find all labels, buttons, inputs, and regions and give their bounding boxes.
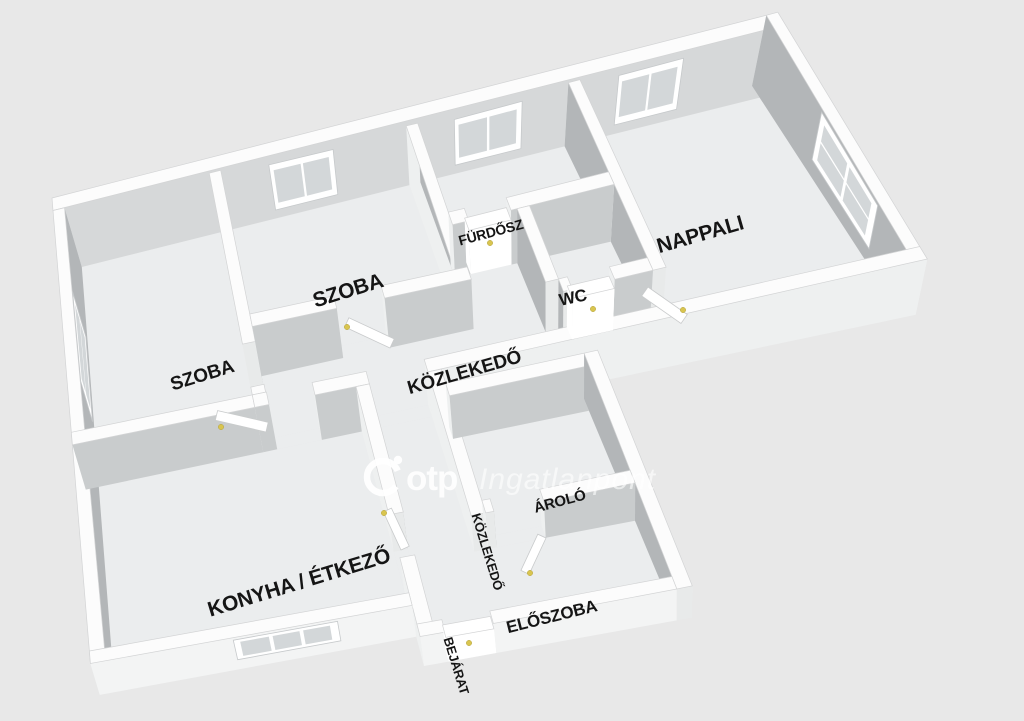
door-handle [344,324,349,329]
door-handle [466,640,471,645]
door-handle [527,570,532,575]
watermark: otp Ingatlanpont [367,456,657,498]
floor-plan-3d: otp Ingatlanpont SZOBA SZOBA FÜRDŐSZ WC … [0,0,1024,721]
door-handle [680,307,685,312]
door-handle [590,306,595,311]
watermark-logo-dot-icon [394,456,402,464]
window-pane [274,164,305,203]
window-pane [303,157,332,196]
door-handle [218,424,223,429]
wall-face [546,279,559,332]
door-handle [381,510,386,515]
watermark-brand: otp [406,459,457,498]
wall-top [252,392,269,407]
wall-face [677,586,693,621]
